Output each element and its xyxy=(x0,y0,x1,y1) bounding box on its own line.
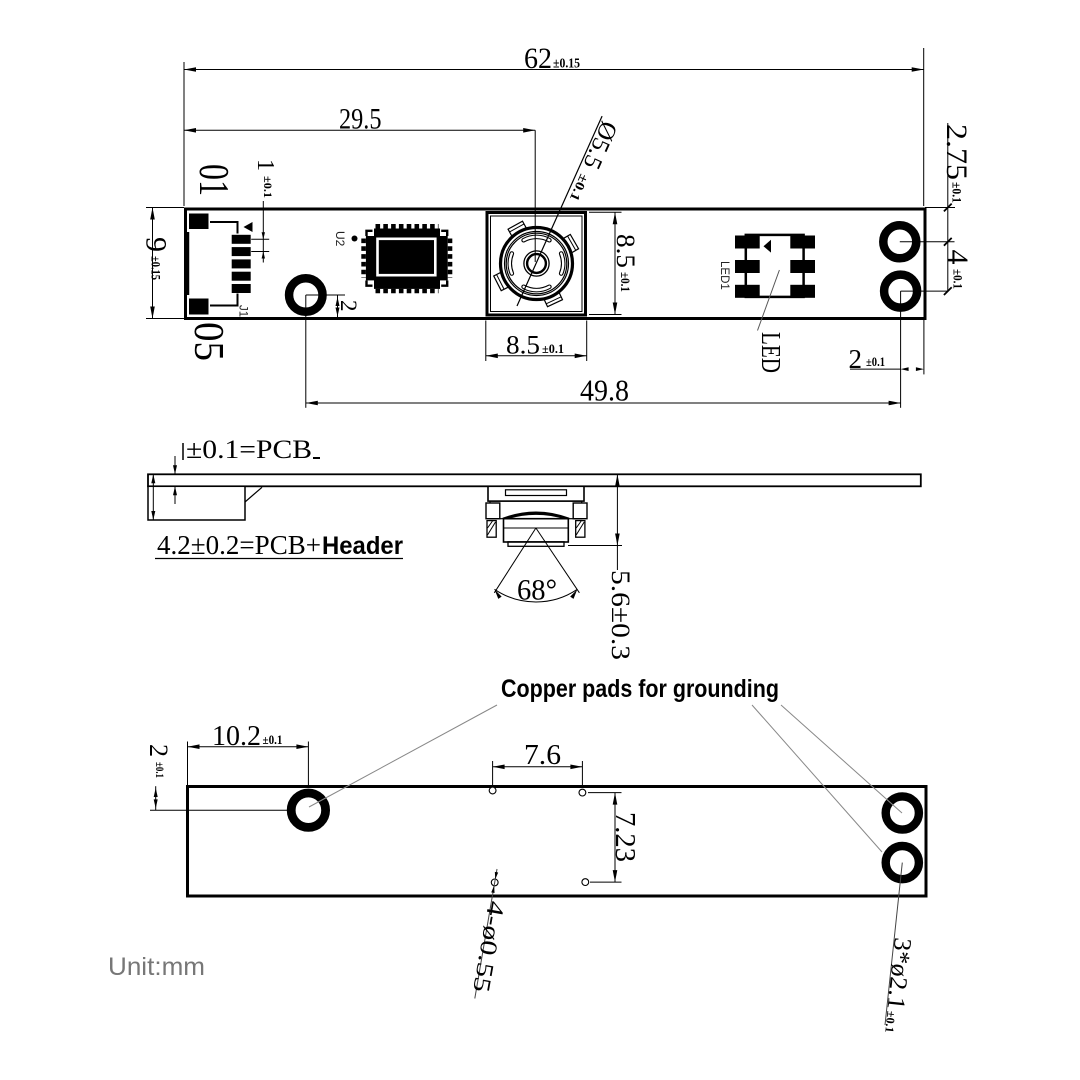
svg-text:U2: U2 xyxy=(333,231,347,247)
svg-text:7.6: 7.6 xyxy=(524,740,561,771)
svg-text:01: 01 xyxy=(190,164,236,196)
svg-text:±0.15: ±0.15 xyxy=(553,56,580,71)
svg-text:Unit:mm: Unit:mm xyxy=(108,953,205,981)
svg-text:7.23: 7.23 xyxy=(609,812,640,862)
svg-text:±0.1: ±0.1 xyxy=(866,355,885,369)
svg-text:29.5: 29.5 xyxy=(339,103,382,136)
svg-text:4: 4 xyxy=(941,250,974,265)
svg-text:±0.1: ±0.1 xyxy=(950,182,964,203)
svg-text:10.2: 10.2 xyxy=(212,721,261,752)
svg-text:5.6±0.3: 5.6±0.3 xyxy=(606,570,635,660)
svg-text:2: 2 xyxy=(144,744,173,757)
svg-text:J1: J1 xyxy=(237,305,249,317)
svg-text:8.5: 8.5 xyxy=(611,234,640,268)
svg-text:05: 05 xyxy=(185,322,231,361)
svg-text:2: 2 xyxy=(849,344,863,374)
svg-text:1: 1 xyxy=(252,159,278,171)
svg-text:±0.1=PCB: ±0.1=PCB xyxy=(186,435,312,464)
svg-text:LED1: LED1 xyxy=(718,261,730,290)
svg-text:±0.1: ±0.1 xyxy=(542,342,564,356)
svg-text:49.8: 49.8 xyxy=(580,373,629,408)
svg-text:9: 9 xyxy=(140,237,173,252)
svg-text:LED: LED xyxy=(756,332,786,373)
svg-text:±0.1: ±0.1 xyxy=(951,269,965,289)
svg-text:±0.1: ±0.1 xyxy=(882,1010,898,1033)
svg-text:Header: Header xyxy=(322,532,403,560)
svg-text:8.5: 8.5 xyxy=(506,331,540,360)
svg-text:±0.15: ±0.15 xyxy=(149,256,164,280)
svg-text:±0.1: ±0.1 xyxy=(263,733,283,747)
svg-text:2.75: 2.75 xyxy=(940,124,973,180)
svg-text:Copper pads for grounding: Copper pads for grounding xyxy=(501,675,779,703)
svg-text:±0.1: ±0.1 xyxy=(261,176,275,198)
svg-text:68°: 68° xyxy=(517,574,557,607)
svg-text:2: 2 xyxy=(336,300,361,312)
svg-text:4.2±0.2=PCB+: 4.2±0.2=PCB+ xyxy=(157,530,321,560)
svg-text:±0.1: ±0.1 xyxy=(153,762,167,778)
svg-text:±0.1: ±0.1 xyxy=(618,272,632,292)
svg-text:62: 62 xyxy=(524,42,552,75)
